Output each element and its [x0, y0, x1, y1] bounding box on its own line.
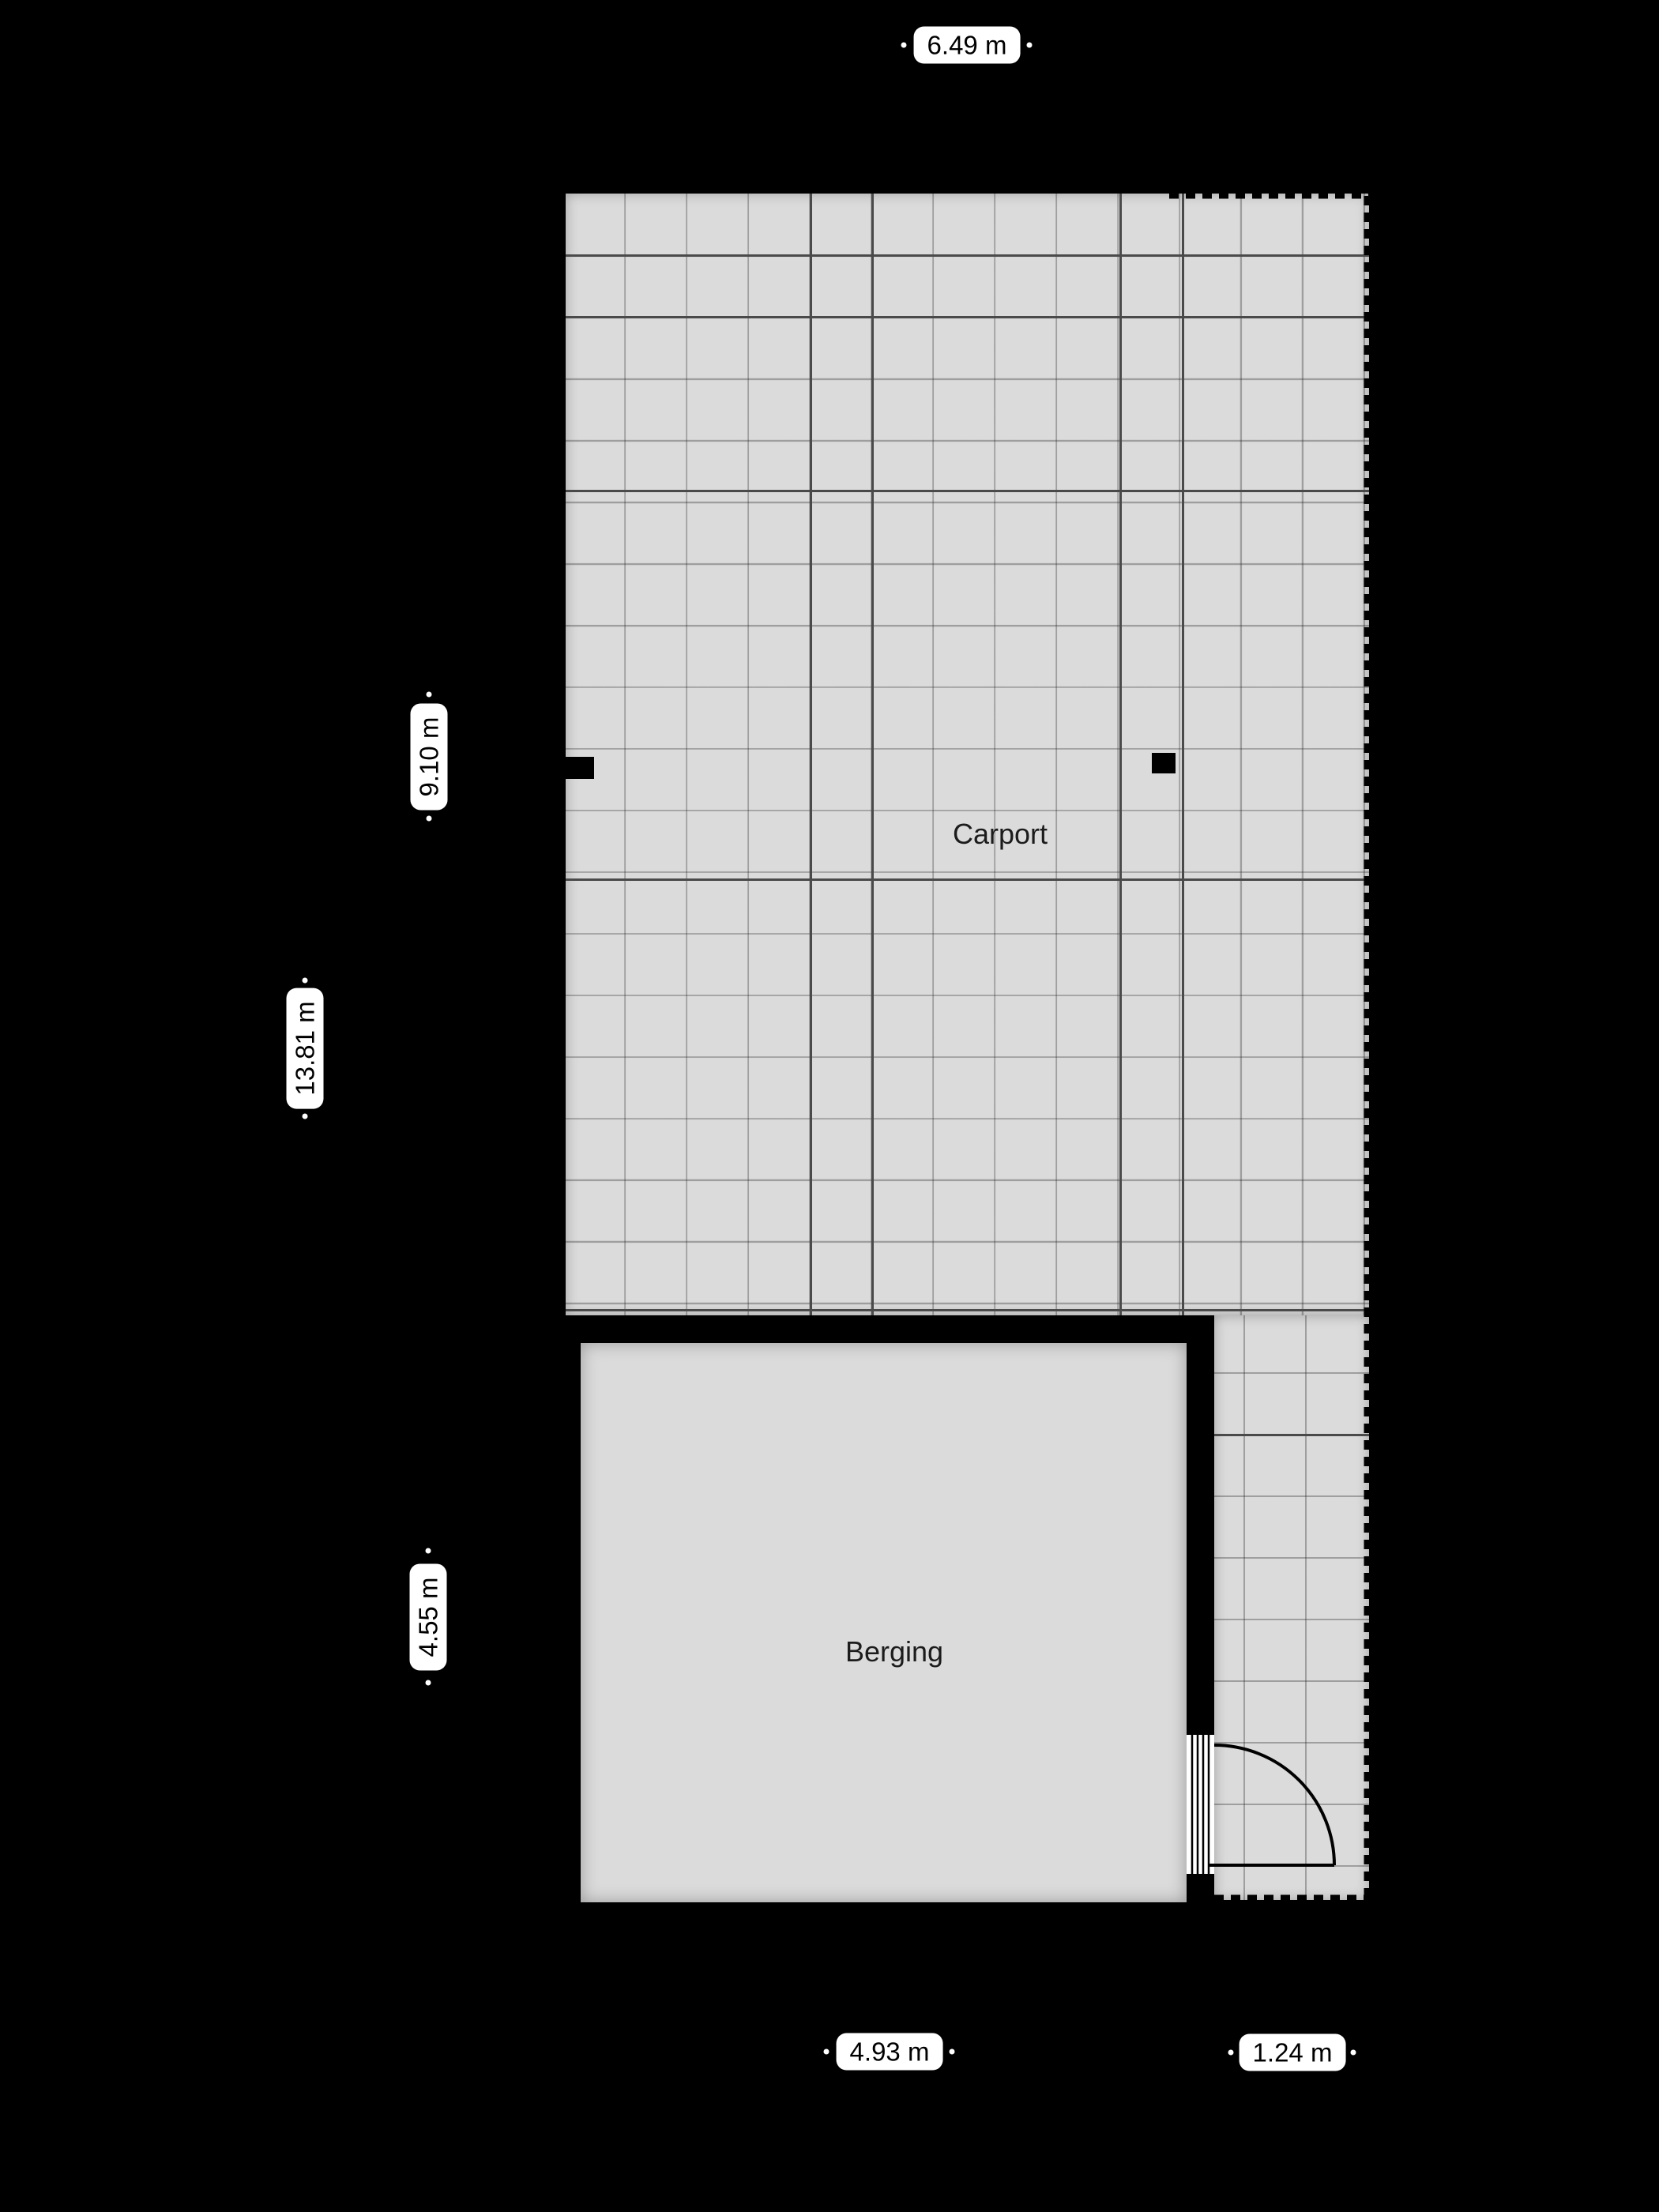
dimension-label-overall-width: 6.49 m — [914, 27, 1021, 64]
dimension-tick — [1027, 43, 1033, 48]
dimension-tick — [426, 1680, 431, 1686]
dimension-tick — [303, 978, 308, 984]
dimension-tick — [1228, 2050, 1234, 2056]
dimension-tick — [824, 2049, 829, 2055]
dimension-tick — [303, 1114, 308, 1119]
plan-linework — [0, 0, 1659, 2212]
dimension-label-side-strip-width: 1.24 m — [1240, 2034, 1346, 2071]
dimension-tick — [901, 43, 907, 48]
floor-plan-canvas: Carport Berging 6.49 m 9.10 m 13.81 m 4.… — [0, 0, 1659, 2212]
dimension-label-berging-width: 4.93 m — [837, 2033, 943, 2071]
dimension-label-overall-depth: 13.81 m — [287, 987, 324, 1108]
dimension-label-berging-depth: 4.55 m — [410, 1564, 447, 1671]
room-label-berging: Berging — [845, 1638, 943, 1666]
room-label-carport: Carport — [953, 820, 1048, 848]
dimension-tick — [427, 816, 432, 822]
dimension-tick — [950, 2049, 955, 2055]
door-panel-lines — [1192, 1735, 1209, 1874]
door-swing-arc — [1214, 1745, 1334, 1865]
dimension-tick — [426, 1548, 431, 1554]
dimension-tick — [427, 692, 432, 698]
dimension-tick — [1351, 2050, 1356, 2056]
dimension-label-carport-depth: 9.10 m — [411, 704, 448, 811]
